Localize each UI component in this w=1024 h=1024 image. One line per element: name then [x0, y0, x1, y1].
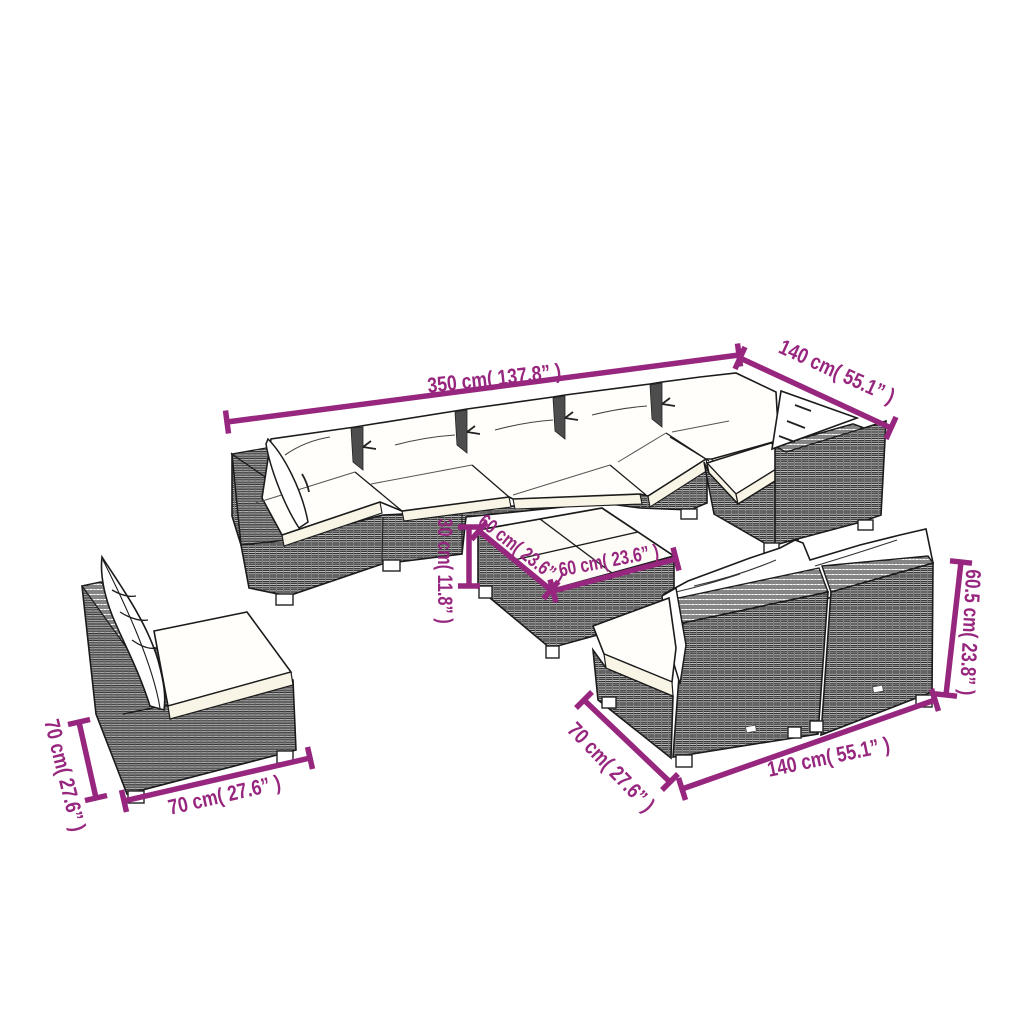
svg-text:30 cm( 11.8” ): 30 cm( 11.8” )	[432, 518, 456, 623]
svg-text:350 cm( 137.8” ): 350 cm( 137.8” )	[426, 360, 562, 399]
